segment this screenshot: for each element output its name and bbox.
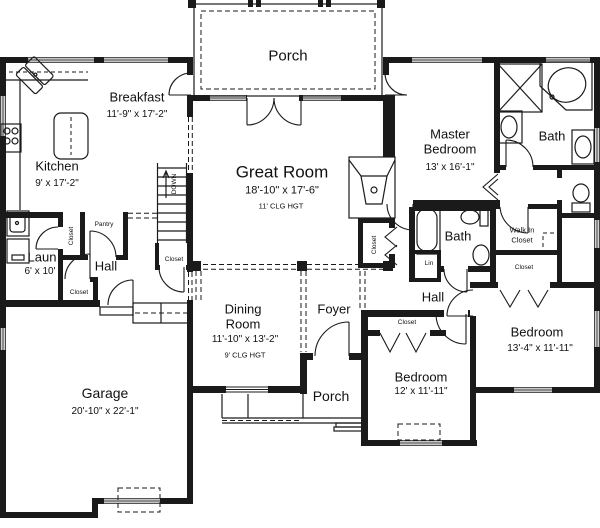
room-dims-laundry: 6' x 10' [24, 267, 55, 277]
label-closet-hall: Closet [70, 290, 88, 297]
room-label-hall-right: Hall [422, 291, 444, 304]
room-dims-garage: 20'-10" x 22'-1" [71, 407, 138, 417]
label-linen: Lin [425, 261, 434, 268]
label-closet-bedroom3: Closet [515, 265, 533, 272]
room-dims-kitchen: 9' x 17'-2" [35, 179, 79, 189]
room-label-dining-line2: Room [226, 318, 261, 331]
room-label-dining-line1: Dining [225, 303, 262, 316]
room-dims-dining: 11'-10" x 13'-2" [212, 335, 278, 345]
label-closet-great-room: Closet [372, 236, 379, 254]
room-label-walkin-line2: Closet [511, 236, 532, 244]
room-dims-bedroom3: 13'-4" x 11'-11" [507, 344, 573, 354]
room-ceiling-dining: 9' CLG HGT [224, 351, 265, 359]
room-dims-bedroom2: 12' x 11'-11" [394, 387, 447, 397]
room-label-garage: Garage [82, 386, 129, 400]
room-label-hall-left: Hall [95, 260, 117, 273]
room-dims-breakfast: 11'-9" x 17'-2" [107, 110, 168, 120]
room-label-master-line1: Master [430, 128, 470, 141]
room-ceiling-great-room: 11' CLG HGT [259, 202, 304, 210]
room-label-porch-bottom: Porch [313, 389, 350, 403]
floor-plan-drawing [0, 0, 600, 528]
room-label-laundry: Laun [28, 251, 57, 264]
room-label-hall-bath: Bath [445, 230, 472, 243]
room-label-porch-top: Porch [268, 49, 307, 64]
room-label-foyer: Foyer [317, 303, 350, 316]
room-dims-master: 13' x 16'-1" [425, 163, 474, 173]
label-closet-stairs: Closet [165, 257, 183, 264]
room-dims-great-room: 18'-10" x 17'-6" [245, 186, 319, 197]
room-label-bedroom2: Bedroom [395, 371, 448, 384]
label-closet-bedroom2: Closet [398, 320, 416, 327]
room-label-bedroom3: Bedroom [511, 326, 564, 339]
label-closet-laundry: Closet [69, 227, 76, 245]
room-label-great-room: Great Room [236, 164, 329, 181]
room-label-breakfast: Breakfast [110, 91, 165, 104]
label-pantry: Pantry [95, 222, 114, 229]
room-label-master-line2: Bedroom [424, 143, 477, 156]
room-label-kitchen: Kitchen [35, 160, 78, 173]
room-label-master-bath: Bath [539, 130, 566, 143]
label-stairs-down: DOWN [172, 174, 179, 195]
room-label-walkin-line1: Walk In [510, 226, 535, 234]
floor-plan: Porch Breakfast 11'-9" x 17'-2" Kitchen … [0, 0, 600, 528]
